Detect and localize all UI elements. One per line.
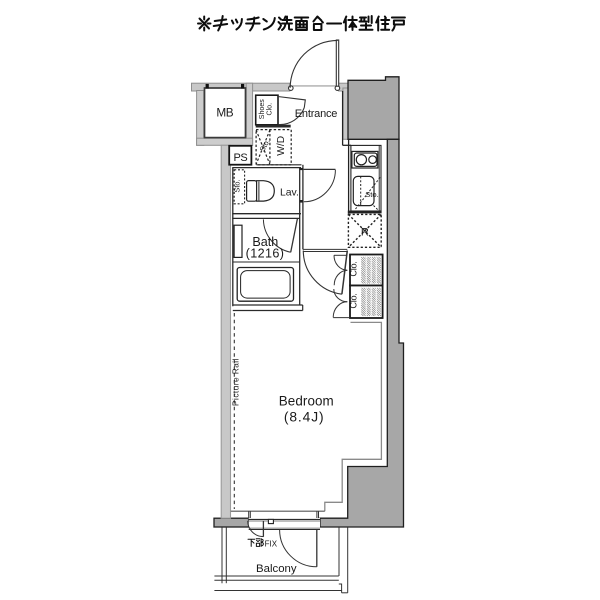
svg-text:FIX: FIX <box>265 539 278 548</box>
svg-text:Balcony: Balcony <box>256 563 297 575</box>
svg-text:MB: MB <box>216 106 233 120</box>
svg-text:PS: PS <box>233 152 247 164</box>
svg-text:W/D: W/D <box>276 136 287 156</box>
svg-text:R: R <box>361 226 369 238</box>
svg-text:Sto.: Sto. <box>365 190 379 199</box>
svg-text:Picture Rail: Picture Rail <box>232 358 241 406</box>
svg-text:Clo.: Clo. <box>265 103 273 116</box>
svg-text:Sto.: Sto. <box>233 179 242 192</box>
svg-text:Clo.: Clo. <box>348 261 358 276</box>
svg-text:Bedroom: Bedroom <box>279 393 334 408</box>
svg-text:Lav.: Lav. <box>280 187 299 198</box>
svg-text:(8.4J): (8.4J) <box>284 409 325 424</box>
svg-text:Entrance: Entrance <box>295 108 338 120</box>
svg-text:Clo.: Clo. <box>348 293 358 308</box>
svg-text:(1216): (1216) <box>246 247 285 261</box>
